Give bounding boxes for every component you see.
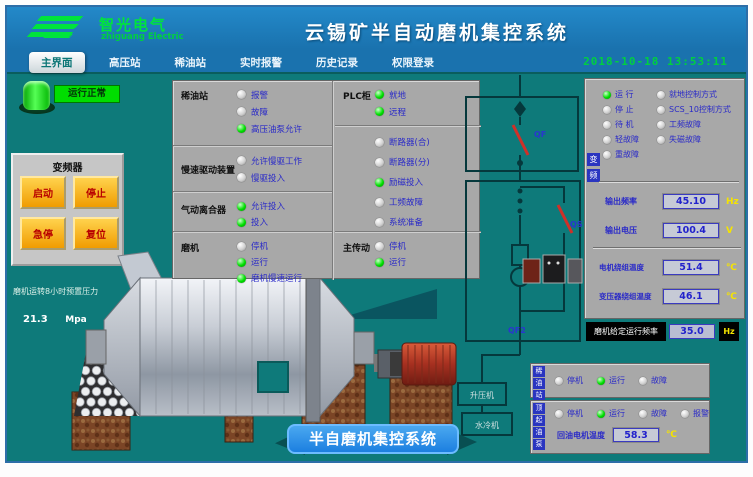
- status-item: 停 止: [603, 102, 639, 117]
- status-item: 高压油泵允许: [237, 120, 302, 137]
- led-indicator: [375, 158, 384, 167]
- led-indicator: [603, 106, 611, 114]
- led-indicator: [375, 107, 384, 116]
- shadow-wedge: [337, 289, 437, 319]
- transformer-symbol: [511, 268, 529, 286]
- status-item-label: 高压油泵允许: [251, 123, 302, 135]
- led-indicator: [603, 91, 611, 99]
- status-item: 报警: [237, 86, 302, 103]
- gearbox: [378, 350, 402, 378]
- readout-value: 45.10: [663, 194, 719, 209]
- status-item-label: 故障: [651, 408, 667, 419]
- status-item: 轻故障: [603, 132, 639, 147]
- status-group: 气动离合器允许投入投入: [173, 193, 332, 233]
- mill-access-door: [258, 362, 288, 392]
- status-item: 投入: [237, 214, 285, 230]
- readout-row: 输出电压100.4V: [605, 216, 739, 245]
- status-item-label: 报警: [251, 89, 268, 101]
- app-window: 智光电气 zhiguang Electric 云锡矿半自动磨机集控系统 主界面 …: [5, 5, 748, 463]
- vfd-status-panel: 变频 运 行停 止待 机轻故障重故障 就地控制方式SCS_10控制方式工频故障失…: [584, 78, 745, 319]
- status-item-label: 允许慢驱工作: [251, 155, 302, 167]
- led-indicator: [237, 124, 246, 133]
- status-item: 磨机慢速运行: [237, 270, 302, 286]
- led-indicator: [237, 156, 246, 165]
- freq-setpoint-value[interactable]: 35.0: [669, 324, 715, 339]
- status-group: PLC柜就地远程: [335, 81, 481, 127]
- menu-tab[interactable]: 实时报警: [240, 55, 282, 70]
- divider: [599, 181, 739, 183]
- grinding-balls: [76, 356, 244, 417]
- status-item-label: 失磁故障: [669, 134, 701, 145]
- status-item-label: 故障: [251, 106, 268, 118]
- led-indicator: [375, 138, 384, 147]
- inverter-button[interactable]: 急停: [20, 217, 66, 250]
- status-group-title: PLC柜: [343, 89, 371, 102]
- booster-unit-label: 升压机: [470, 390, 494, 400]
- status-item: 允许慢驱工作: [237, 152, 302, 169]
- status-item-label: 故障: [651, 375, 667, 386]
- status-item-label: 磨机慢速运行: [251, 272, 302, 284]
- equipment-photo: [543, 255, 565, 283]
- readout-label: 输出频率: [605, 196, 663, 207]
- readout-label: 电机绕组温度: [599, 262, 663, 273]
- header-bar: 智光电气 zhiguang Electric 云锡矿半自动磨机集控系统: [7, 7, 746, 49]
- vertical-label-char: 油: [533, 378, 545, 389]
- status-item: 允许投入: [237, 198, 285, 214]
- status-group: 主传动停机运行: [335, 233, 481, 280]
- status-item: 系统准备: [375, 212, 430, 232]
- datetime-display: 2018-10-18 13:53:11: [583, 55, 728, 68]
- led-indicator: [639, 410, 647, 418]
- status-item-label: 停机: [389, 240, 406, 252]
- status-item-label: 运行: [609, 408, 625, 419]
- status-item-label: 允许投入: [251, 200, 285, 212]
- lift-pump-status-group: 顶起油泵 停机运行故障报警 回油电机温度 58.3 ℃: [530, 400, 710, 454]
- readout-row: 电机绕组温度51.4℃: [599, 253, 737, 282]
- status-item: 故障: [639, 373, 667, 388]
- return-oil-temp-readout: 回油电机温度 58.3 ℃: [557, 428, 677, 442]
- led-indicator: [681, 410, 689, 418]
- inverter-control-box: 变频器 启动停止急停复位: [11, 153, 124, 266]
- status-item-label: 工频故障: [669, 119, 701, 130]
- led-indicator: [639, 377, 647, 385]
- led-indicator: [237, 274, 246, 283]
- status-item: 慢驱投入: [237, 169, 302, 186]
- status-item-label: 投入: [251, 216, 268, 228]
- status-group: 磨机停机运行磨机慢速运行: [173, 233, 332, 280]
- status-item-label: 停机: [567, 408, 583, 419]
- status-item: 失磁故障: [657, 132, 731, 147]
- mill-frequency-setpoint: 磨机给定运行频率 35.0 Hz: [586, 322, 739, 341]
- led-indicator: [555, 377, 563, 385]
- status-group: 稀油站报警故障高压油泵允许: [173, 81, 332, 147]
- readout-value: 46.1: [663, 289, 719, 304]
- status-item-label: 报警: [693, 408, 709, 419]
- status-item: 故障: [639, 406, 667, 421]
- led-indicator: [237, 218, 246, 227]
- status-item-label: 断路器(合): [389, 136, 430, 148]
- status-item: 待 机: [603, 117, 639, 132]
- status-rows: 报警故障高压油泵允许: [237, 86, 302, 137]
- status-item: 远程: [375, 103, 406, 120]
- group-vertical-label: 稀油站: [533, 366, 545, 401]
- vertical-label-char: 泵: [533, 439, 545, 450]
- status-item-label: 停机: [567, 375, 583, 386]
- divider: [593, 247, 741, 249]
- status-item-label: 待 机: [615, 119, 634, 130]
- status-item-label: 轻故障: [615, 134, 639, 145]
- status-item-label: SCS_10控制方式: [669, 104, 731, 115]
- status-item-label: 就地控制方式: [669, 89, 717, 100]
- readout-label: 输出电压: [605, 225, 663, 236]
- readout-label: 变压器绕组温度: [599, 291, 663, 302]
- disconnect-label: QS: [570, 220, 583, 229]
- led-indicator: [555, 410, 563, 418]
- pressure-unit: Mpa: [65, 315, 86, 325]
- status-item: 工频故障: [375, 192, 430, 212]
- status-rows: 停机运行磨机慢速运行: [237, 238, 302, 286]
- led-indicator: [375, 178, 384, 187]
- lv-cubicle-outline: [466, 181, 580, 341]
- preset-pressure-label: 磨机运转8小时预置压力: [13, 286, 173, 297]
- led-indicator: [657, 91, 665, 99]
- status-item-label: 励磁投入: [389, 176, 423, 188]
- readout-value: 100.4: [663, 223, 719, 238]
- led-indicator: [237, 258, 246, 267]
- plant-status-panel: 稀油站报警故障高压油泵允许慢速驱动装置允许慢驱工作慢驱投入气动离合器允许投入投入…: [172, 80, 480, 279]
- freq-setpoint-unit: Hz: [719, 322, 739, 341]
- led-indicator: [603, 136, 611, 144]
- inverter-button[interactable]: 复位: [73, 217, 119, 250]
- oil-station-status-group: 稀油站 停机运行故障: [530, 363, 710, 398]
- led-indicator: [657, 136, 665, 144]
- breaker-label: QF: [534, 130, 546, 139]
- vfd-mode-column: 就地控制方式SCS_10控制方式工频故障失磁故障: [657, 87, 731, 147]
- status-item-label: 运行: [389, 256, 406, 268]
- ring-gear: [306, 272, 320, 422]
- menu-tab[interactable]: 历史记录: [316, 55, 358, 70]
- status-item: 就地: [375, 86, 406, 103]
- status-item-label: 运行: [609, 375, 625, 386]
- run-status-lamp: [23, 81, 50, 110]
- readout-row: 输出频率45.10Hz: [605, 187, 739, 216]
- mill-feed-head: [104, 278, 140, 416]
- system-badge: 半自磨机集控系统: [259, 423, 489, 457]
- led-indicator: [603, 121, 611, 129]
- page-title: 云锡矿半自动磨机集控系统: [242, 18, 632, 45]
- status-item-label: 停 止: [615, 104, 634, 115]
- status-item-label: 就地: [389, 89, 406, 101]
- led-indicator: [375, 218, 384, 227]
- status-group-title: 主传动: [343, 241, 370, 254]
- status-rows: 停机运行: [375, 238, 406, 270]
- disconnect-open-switch[interactable]: [558, 205, 572, 233]
- status-group-title: 磨机: [181, 241, 199, 254]
- status-item: 重故障: [603, 147, 639, 162]
- led-indicator: [603, 151, 611, 159]
- status-rows: 允许慢驱工作慢驱投入: [237, 152, 302, 186]
- status-group: 慢速驱动装置允许慢驱工作慢驱投入: [173, 147, 332, 193]
- readout-unit: V: [726, 226, 733, 236]
- breaker2-label: QF2: [508, 326, 526, 335]
- status-item: 运行: [375, 254, 406, 270]
- company-logo-icon: [29, 14, 93, 44]
- readout-unit: ℃: [726, 263, 737, 273]
- status-rows: 允许投入投入: [237, 198, 285, 230]
- company-name-en: zhiguang Electric: [101, 32, 184, 42]
- status-item: 就地控制方式: [657, 87, 731, 102]
- led-indicator: [237, 202, 246, 211]
- pressure-value: 21.3: [23, 314, 48, 325]
- status-panel-left-column: 稀油站报警故障高压油泵允许慢速驱动装置允许慢驱工作慢驱投入气动离合器允许投入投入…: [173, 81, 334, 280]
- status-item: 断路器(合): [375, 132, 430, 152]
- preset-pressure-value: 21.3 Mpa: [23, 307, 87, 326]
- status-rows: 就地远程: [375, 86, 406, 120]
- foundation-block: [72, 392, 130, 450]
- vertical-label-char: 顶: [533, 403, 545, 414]
- freq-setpoint-label: 磨机给定运行频率: [586, 322, 666, 341]
- vertical-label-char: 油: [533, 427, 545, 438]
- led-indicator: [657, 121, 665, 129]
- menu-tabs: 高压站稀油站实时报警历史记录权限登录: [109, 55, 434, 70]
- led-indicator: [375, 242, 384, 251]
- status-item-label: 断路器(分): [389, 156, 430, 168]
- status-row: 停机运行故障报警: [555, 406, 709, 421]
- led-indicator: [375, 90, 384, 99]
- coupling: [390, 352, 402, 376]
- status-rows: 断路器(合)断路器(分)励磁投入工频故障系统准备: [375, 132, 430, 232]
- status-panel-right-column: PLC柜就地远程断路器(合)断路器(分)励磁投入工频故障系统准备主传动停机运行: [335, 81, 481, 280]
- inverter-button[interactable]: 启动: [20, 176, 66, 209]
- readout-value: 51.4: [663, 260, 719, 275]
- inverter-button[interactable]: 停止: [73, 176, 119, 209]
- vfd-temperature-readouts: 电机绕组温度51.4℃变压器绕组温度46.1℃: [599, 253, 737, 311]
- status-row: 停机运行故障: [555, 373, 667, 388]
- mill-shell: [140, 278, 312, 416]
- status-group: 断路器(合)断路器(分)励磁投入工频故障系统准备: [335, 127, 481, 233]
- status-item: 停机: [375, 238, 406, 254]
- menu-tab[interactable]: 高压站: [109, 55, 141, 70]
- status-item-label: 重故障: [615, 149, 639, 160]
- led-indicator: [237, 107, 246, 116]
- status-item: 运行: [237, 254, 302, 270]
- status-item-label: 停机: [251, 240, 268, 252]
- menu-tab[interactable]: 稀油站: [175, 55, 207, 70]
- vfd-vertical-label: 变频: [587, 153, 600, 182]
- trunnion-right: [354, 332, 374, 364]
- led-indicator: [657, 106, 665, 114]
- status-item: 停机: [237, 238, 302, 254]
- status-item-label: 工频故障: [389, 196, 423, 208]
- inverter-buttons: 启动停止急停复位: [20, 176, 119, 250]
- group-vertical-label: 顶起油泵: [533, 403, 545, 450]
- status-item: 运 行: [603, 87, 639, 102]
- status-item: 运行: [597, 373, 625, 388]
- led-indicator: [237, 173, 246, 182]
- led-indicator: [237, 242, 246, 251]
- status-item-label: 远程: [389, 106, 406, 118]
- system-badge-label: 半自磨机集控系统: [287, 424, 459, 454]
- vfd-state-column: 运 行停 止待 机轻故障重故障: [603, 87, 639, 162]
- status-item: 停机: [555, 406, 583, 421]
- status-item: 断路器(分): [375, 152, 430, 172]
- readout-unit: ℃: [726, 292, 737, 302]
- status-group-title: 慢速驱动装置: [181, 163, 235, 176]
- mill-discharge-head: [320, 278, 354, 416]
- status-group-title: 气动离合器: [181, 203, 226, 216]
- status-item: SCS_10控制方式: [657, 102, 731, 117]
- menu-tab[interactable]: 权限登录: [392, 55, 434, 70]
- readout-unit: ℃: [666, 430, 677, 440]
- status-group-title: 稀油站: [181, 89, 208, 102]
- vertical-label-char: 起: [533, 415, 545, 426]
- status-item-label: 运 行: [615, 89, 634, 100]
- readout-value: 58.3: [613, 428, 659, 442]
- led-indicator: [237, 90, 246, 99]
- drive-shaft: [374, 354, 384, 372]
- inverter-box-title: 变频器: [13, 159, 122, 174]
- readout-unit: Hz: [726, 197, 739, 207]
- status-item: 报警: [681, 406, 709, 421]
- led-indicator: [597, 410, 605, 418]
- led-indicator: [375, 198, 384, 207]
- vfd-output-readouts: 输出频率45.10Hz输出电压100.4V: [605, 187, 739, 245]
- menu-tab-active[interactable]: 主界面: [29, 52, 85, 73]
- led-indicator: [597, 377, 605, 385]
- vertical-label-char: 稀: [533, 366, 545, 377]
- readout-row: 变压器绕组温度46.1℃: [599, 282, 737, 311]
- equipment-photo: [523, 259, 540, 283]
- status-item: 运行: [597, 406, 625, 421]
- trunnion-left: [86, 330, 106, 364]
- led-indicator: [375, 258, 384, 267]
- hv-cubicle-outline: [466, 97, 578, 171]
- status-item: 励磁投入: [375, 172, 430, 192]
- mill-motor: [402, 343, 456, 385]
- status-item: 工频故障: [657, 117, 731, 132]
- status-item: 停机: [555, 373, 583, 388]
- equipment-photo: [568, 259, 582, 283]
- vertical-label-char: 变: [587, 153, 600, 166]
- status-item: 故障: [237, 103, 302, 120]
- readout-label: 回油电机温度: [557, 430, 605, 441]
- scada-screen: 智光电气 zhiguang Electric 云锡矿半自动磨机集控系统 主界面 …: [0, 0, 753, 477]
- booster-unit-box: [458, 383, 506, 405]
- status-item-label: 系统准备: [389, 216, 423, 228]
- breaker-open-switch[interactable]: [513, 125, 528, 155]
- status-item-label: 运行: [251, 256, 268, 268]
- run-status-label: 运行正常: [54, 85, 120, 103]
- status-item-label: 慢驱投入: [251, 172, 285, 184]
